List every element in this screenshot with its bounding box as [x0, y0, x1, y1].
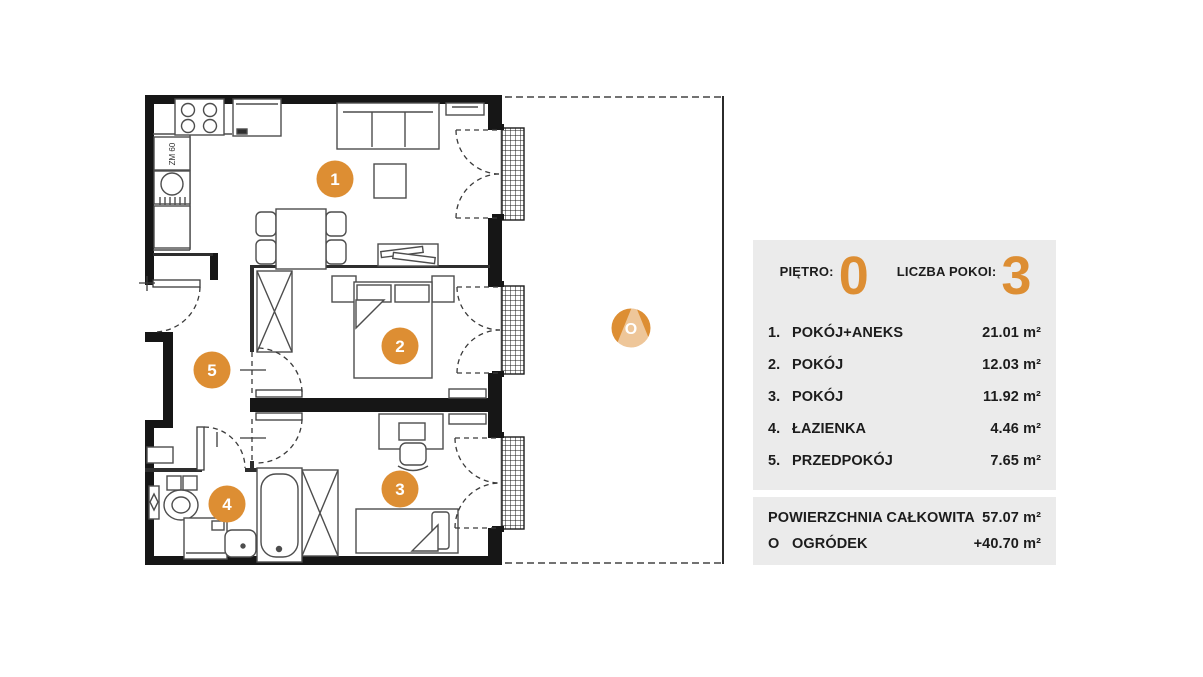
- room-number: 2.: [768, 357, 792, 373]
- room-name: POKÓJ+ANEKS: [792, 325, 982, 341]
- radiator: [446, 103, 484, 115]
- room-marker-1-label: 1: [330, 170, 339, 189]
- summary-card: PIĘTRO: 0 LICZBA POKOI: 3 1. POKÓJ+ANEKS…: [753, 240, 1056, 490]
- room-row: 1. POKÓJ+ANEKS 21.01 m²: [768, 325, 1041, 341]
- floorplan-page: ZM 60: [0, 0, 1203, 677]
- room-row: 4. ŁAZIENKA 4.46 m²: [768, 421, 1041, 437]
- door-jamb: [492, 124, 504, 130]
- total-row: O OGRÓDEK +40.70 m²: [768, 536, 1041, 552]
- room-name: PRZEDPOKÓJ: [792, 453, 990, 469]
- desk-chair-back: [398, 466, 428, 471]
- wall-rooms-divider: [250, 398, 490, 412]
- living-room: [337, 103, 484, 266]
- pillow: [395, 285, 429, 302]
- room-marker-2: 2: [382, 328, 419, 365]
- room-area: 12.03 m²: [982, 357, 1041, 373]
- total-row: POWIERZCHNIA CAŁKOWITA 57.07 m²: [768, 510, 1041, 526]
- wall-hall-stub: [210, 253, 218, 280]
- window-grate: [502, 128, 524, 220]
- toilet-cistern: [167, 476, 181, 490]
- room-area: 21.01 m²: [982, 325, 1041, 341]
- room-marker-4-label: 4: [222, 495, 232, 514]
- floor-label: PIĘTRO:: [780, 253, 834, 279]
- room-name: ŁAZIENKA: [792, 421, 990, 437]
- room-marker-5: 5: [194, 352, 231, 389]
- room-count-stat: LICZBA POKOI: 3: [897, 253, 1030, 301]
- fridge-detail: [237, 129, 247, 134]
- room-name: POKÓJ: [792, 389, 983, 405]
- door-jamb: [492, 371, 504, 377]
- wall-right-seg: [488, 528, 502, 565]
- wall-left-inset: [163, 332, 173, 422]
- door-jamb: [492, 526, 504, 532]
- room-marker-1: 1: [317, 161, 354, 198]
- room-name: POKÓJ: [792, 357, 982, 373]
- sink-drain: [241, 544, 245, 548]
- total-name: OGRÓDEK: [792, 536, 974, 552]
- nightstand: [432, 276, 454, 302]
- dishwasher-label: ZM 60: [168, 142, 177, 165]
- bathroom-door-leaf: [197, 427, 204, 470]
- room-marker-3-label: 3: [395, 480, 404, 499]
- room2-door-leaf: [256, 390, 302, 397]
- room3-door-swing: [257, 419, 302, 463]
- hall-cabinet: [147, 447, 173, 463]
- room-list: 1. POKÓJ+ANEKS 21.01 m² 2. POKÓJ 12.03 m…: [768, 325, 1041, 469]
- toilet-cistern: [183, 476, 197, 490]
- room-marker-5-label: 5: [207, 361, 216, 380]
- totals-card: POWIERZCHNIA CAŁKOWITA 57.07 m² O OGRÓDE…: [753, 497, 1056, 565]
- room-marker-3: 3: [382, 471, 419, 508]
- chair: [326, 240, 346, 264]
- total-name: POWIERZCHNIA CAŁKOWITA: [768, 510, 982, 526]
- room-row: 2. POKÓJ 12.03 m²: [768, 357, 1041, 373]
- chair: [256, 240, 276, 264]
- room-area: 4.46 m²: [990, 421, 1041, 437]
- nightstand: [332, 276, 356, 302]
- entrance-door-swing: [154, 287, 200, 332]
- bathroom-sink: [225, 530, 256, 557]
- washer-drawer: [212, 521, 224, 530]
- wall-hall-room2: [250, 265, 254, 352]
- wall-hall-top: [153, 253, 213, 256]
- panel-header: PIĘTRO: 0 LICZBA POKOI: 3: [768, 253, 1041, 301]
- total-prefix: O: [768, 536, 792, 552]
- radiator: [449, 389, 486, 398]
- radiator: [449, 414, 486, 424]
- wall-left-upper: [145, 95, 154, 285]
- room-marker-2-label: 2: [395, 337, 404, 356]
- chair: [326, 212, 346, 236]
- room-row: 5. PRZEDPOKÓJ 7.65 m²: [768, 453, 1041, 469]
- wall-right-seg: [488, 218, 502, 287]
- floor-stat: PIĘTRO: 0: [780, 253, 867, 301]
- room-area: 11.92 m²: [983, 389, 1041, 405]
- dining-table: [276, 209, 326, 269]
- chair: [256, 212, 276, 236]
- window-grate: [502, 437, 524, 529]
- floor-value: 0: [839, 253, 867, 301]
- room-row: 3. POKÓJ 11.92 m²: [768, 389, 1041, 405]
- room-count-label: LICZBA POKOI:: [897, 253, 997, 279]
- room3-door-leaf: [256, 413, 302, 420]
- coffee-table: [374, 164, 406, 198]
- watermark-shape: [661, 318, 691, 356]
- sofa: [337, 103, 439, 149]
- watermark: [563, 300, 772, 356]
- total-area: +40.70 m²: [974, 536, 1041, 552]
- window-grate: [502, 286, 524, 374]
- door-jamb: [492, 281, 504, 287]
- french-doors: [455, 130, 500, 528]
- room-area: 7.65 m²: [990, 453, 1041, 469]
- dining-set: [256, 209, 346, 269]
- door-jamb: [492, 214, 504, 220]
- bathtub-drain: [277, 547, 282, 552]
- entrance-door-leaf: [153, 280, 200, 287]
- wall-right-seg: [488, 373, 502, 438]
- toilet: [164, 490, 198, 520]
- watermark-shape: [563, 302, 607, 356]
- desk-chair: [400, 443, 426, 465]
- room-count-value: 3: [1001, 253, 1029, 301]
- wall-bath-top-left: [145, 468, 202, 472]
- bedroom-2: [257, 271, 486, 398]
- bathtub-inner: [261, 474, 298, 557]
- info-panel: PIĘTRO: 0 LICZBA POKOI: 3 1. POKÓJ+ANEKS…: [753, 240, 1056, 565]
- room-number: 3.: [768, 389, 792, 405]
- room-number: 5.: [768, 453, 792, 469]
- room-number: 4.: [768, 421, 792, 437]
- monitor: [399, 423, 425, 440]
- kitchen-cabinet: [154, 206, 190, 248]
- bathroom-door-swing: [204, 427, 245, 468]
- total-area: 57.07 m²: [982, 510, 1041, 526]
- window-grates: [502, 128, 524, 529]
- door-jamb: [492, 432, 504, 438]
- room-number: 1.: [768, 325, 792, 341]
- room-marker-4: 4: [209, 486, 246, 523]
